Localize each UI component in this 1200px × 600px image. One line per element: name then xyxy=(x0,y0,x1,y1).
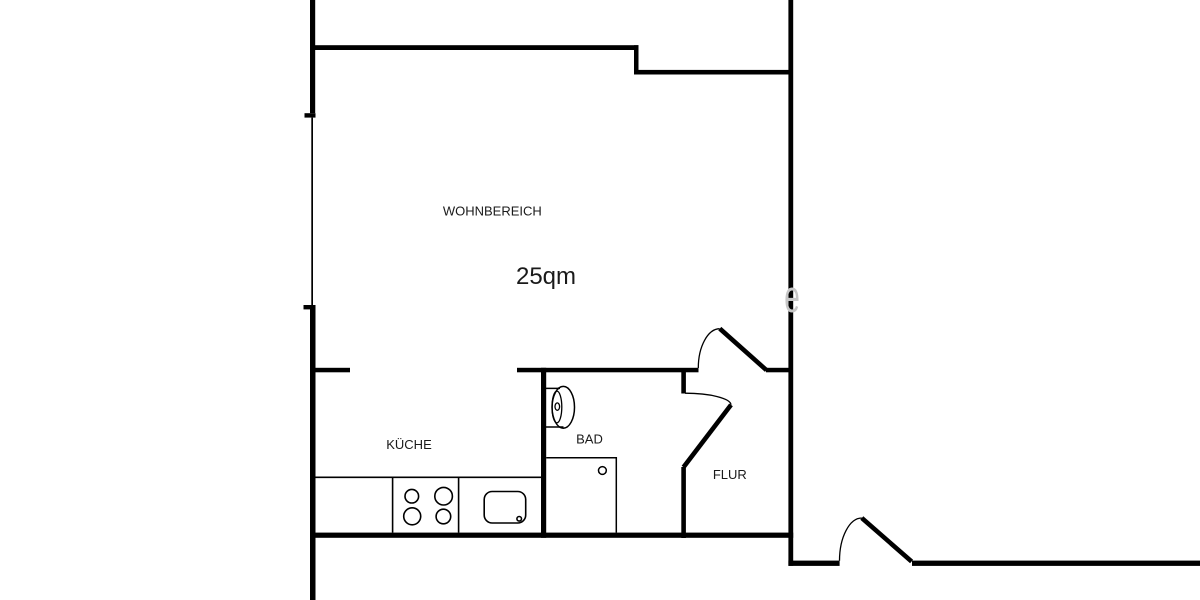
svg-text:FLUR: FLUR xyxy=(713,467,747,482)
svg-text:BAD: BAD xyxy=(576,432,603,447)
svg-text:WOHNBEREICH: WOHNBEREICH xyxy=(443,203,542,218)
svg-text:KÜCHE: KÜCHE xyxy=(386,437,432,452)
svg-text:25qm: 25qm xyxy=(516,263,576,290)
svg-text:e: e xyxy=(784,271,800,321)
